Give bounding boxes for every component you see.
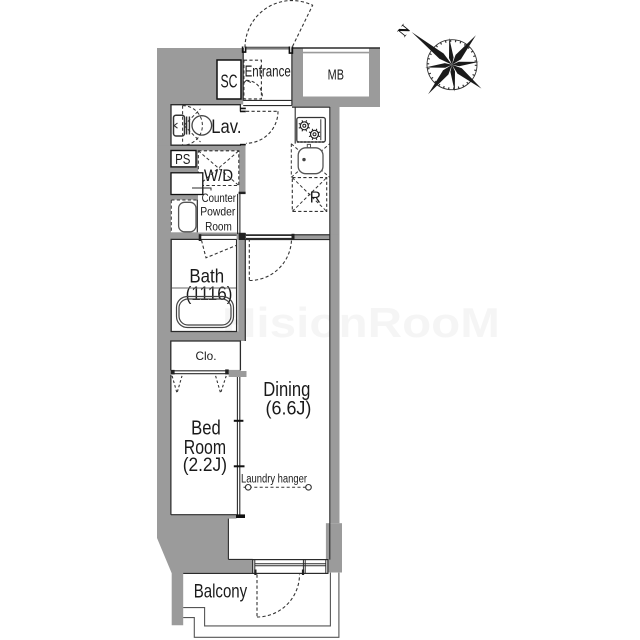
- svg-text:Laundry hanger: Laundry hanger: [241, 474, 307, 486]
- svg-text:Balcony: Balcony: [194, 581, 248, 603]
- svg-text:Counter: Counter: [202, 191, 236, 205]
- svg-text:Room: Room: [205, 219, 232, 233]
- svg-text:Lav.: Lav.: [211, 116, 241, 138]
- svg-text:HisionRooM: HisionRooM: [222, 299, 500, 346]
- svg-text:W/D: W/D: [204, 167, 233, 185]
- svg-text:Powder: Powder: [200, 205, 235, 219]
- svg-text:PS: PS: [175, 152, 191, 168]
- svg-text:R: R: [310, 189, 321, 206]
- svg-text:SC: SC: [221, 72, 238, 92]
- svg-text:Clo.: Clo.: [196, 349, 217, 363]
- svg-text:(1116): (1116): [186, 284, 233, 305]
- svg-text:Entrance: Entrance: [245, 63, 291, 80]
- svg-text:MB: MB: [328, 68, 344, 84]
- svg-text:(6.6J): (6.6J): [266, 397, 312, 419]
- svg-text:(2.2J): (2.2J): [183, 454, 227, 476]
- svg-text:N: N: [395, 21, 414, 40]
